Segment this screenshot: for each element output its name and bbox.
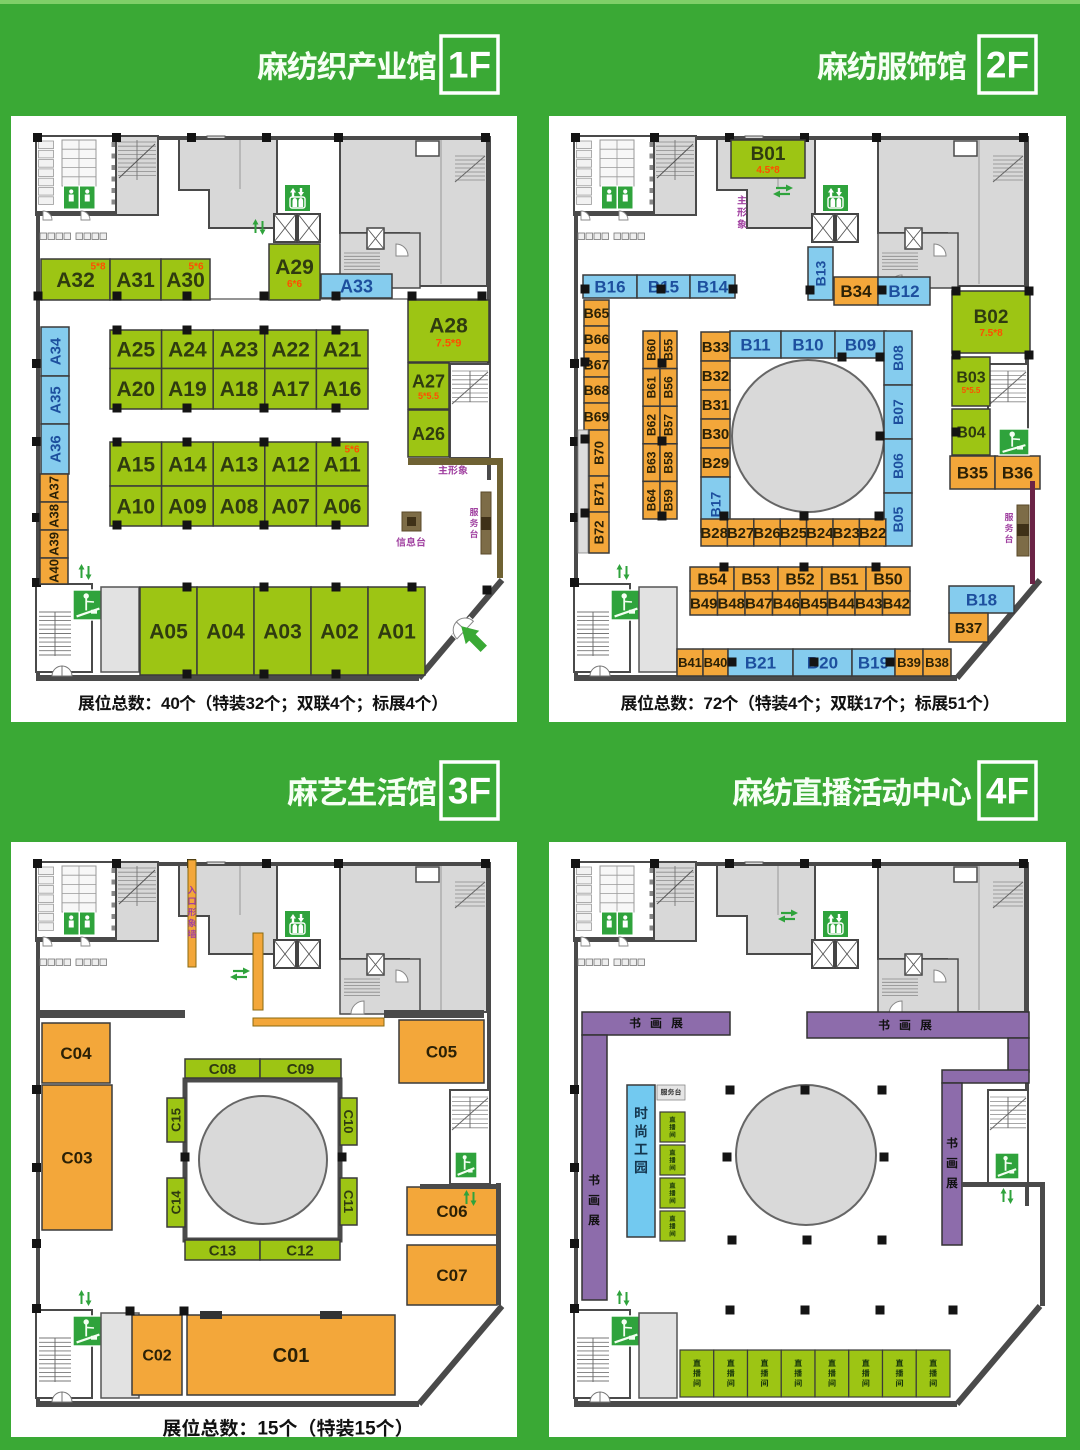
- svg-text:B01: B01: [751, 144, 786, 165]
- svg-text:B25: B25: [780, 525, 808, 542]
- svg-text:C10: C10: [341, 1110, 356, 1134]
- svg-text:B54: B54: [697, 572, 726, 589]
- svg-text:B52: B52: [785, 572, 814, 589]
- svg-text:B65: B65: [584, 305, 610, 321]
- svg-text:A17: A17: [271, 378, 310, 401]
- svg-text:B14: B14: [697, 277, 729, 296]
- svg-text:15: 15: [355, 1419, 377, 1437]
- svg-text:C14: C14: [169, 1190, 184, 1215]
- svg-text:B58: B58: [662, 451, 676, 473]
- svg-text:A32: A32: [56, 269, 95, 292]
- svg-text:7.5*9: 7.5*9: [436, 337, 462, 349]
- svg-text:B12: B12: [888, 282, 919, 301]
- svg-text:B23: B23: [832, 525, 860, 542]
- svg-text:A28: A28: [429, 314, 468, 337]
- svg-text:B71: B71: [592, 482, 607, 506]
- svg-text:B03: B03: [956, 370, 985, 387]
- svg-text:B42: B42: [882, 595, 910, 612]
- svg-text:B63: B63: [645, 451, 659, 473]
- svg-text:B34: B34: [840, 282, 872, 301]
- svg-text:2F: 2F: [986, 44, 1029, 85]
- svg-text:5*6: 5*6: [344, 445, 359, 456]
- svg-text:C05: C05: [426, 1042, 457, 1061]
- svg-text:C06: C06: [436, 1202, 467, 1221]
- svg-text:72: 72: [703, 694, 722, 713]
- svg-text:C15: C15: [169, 1108, 184, 1132]
- svg-text:A14: A14: [168, 453, 207, 476]
- svg-text:A05: A05: [149, 620, 188, 643]
- svg-text:A01: A01: [377, 620, 416, 643]
- svg-text:B36: B36: [1002, 463, 1033, 482]
- svg-text:A22: A22: [271, 339, 310, 362]
- svg-text:A24: A24: [168, 339, 207, 362]
- svg-text:4.5*8: 4.5*8: [756, 165, 780, 176]
- svg-text:B11: B11: [740, 335, 770, 354]
- svg-text:A16: A16: [323, 378, 362, 401]
- svg-text:A06: A06: [323, 495, 362, 518]
- svg-text:B29: B29: [702, 455, 730, 472]
- svg-text:B21: B21: [745, 653, 776, 672]
- svg-text:A29: A29: [275, 256, 314, 279]
- svg-text:B44: B44: [827, 595, 855, 612]
- svg-text:B06: B06: [890, 453, 906, 479]
- svg-text:A09: A09: [168, 495, 207, 518]
- svg-text:B27: B27: [727, 525, 755, 542]
- svg-text:B26: B26: [753, 525, 781, 542]
- svg-text:B41: B41: [678, 655, 702, 670]
- svg-text:A25: A25: [117, 339, 156, 362]
- svg-text:B70: B70: [592, 441, 607, 465]
- svg-text:B28: B28: [700, 525, 728, 542]
- svg-text:B08: B08: [890, 345, 906, 371]
- svg-text:C08: C08: [209, 1061, 237, 1078]
- svg-text:B59: B59: [662, 489, 676, 511]
- svg-text:B55: B55: [662, 338, 676, 360]
- svg-text:B33: B33: [702, 339, 730, 356]
- svg-text:A11: A11: [324, 453, 362, 476]
- svg-text:B39: B39: [897, 655, 921, 670]
- svg-text:C01: C01: [273, 1345, 310, 1367]
- svg-text:B69: B69: [584, 408, 610, 424]
- svg-text:A15: A15: [117, 453, 156, 476]
- svg-text:B13: B13: [812, 260, 828, 286]
- svg-text:A03: A03: [263, 620, 302, 643]
- svg-text:51: 51: [948, 694, 967, 713]
- svg-text:B72: B72: [592, 521, 607, 545]
- svg-text:A23: A23: [220, 339, 259, 362]
- svg-text:B53: B53: [741, 572, 770, 589]
- svg-text:A12: A12: [271, 453, 310, 476]
- svg-text:B30: B30: [702, 426, 730, 443]
- svg-text:40: 40: [161, 694, 180, 713]
- svg-text:B07: B07: [890, 399, 906, 425]
- svg-text:B60: B60: [645, 338, 659, 360]
- svg-text:A33: A33: [340, 276, 373, 296]
- svg-text:B61: B61: [645, 376, 659, 398]
- svg-text:B40: B40: [704, 655, 728, 670]
- svg-text:B49: B49: [690, 595, 718, 612]
- svg-text:B24: B24: [806, 525, 834, 542]
- svg-text:B68: B68: [584, 382, 610, 398]
- svg-text:A36: A36: [47, 435, 64, 463]
- svg-text:7.5*8: 7.5*8: [979, 328, 1003, 339]
- svg-text:B64: B64: [645, 489, 659, 511]
- svg-text:5*8: 5*8: [90, 262, 105, 273]
- svg-text:A02: A02: [320, 620, 359, 643]
- svg-text:A18: A18: [220, 378, 259, 401]
- svg-text:A19: A19: [168, 378, 207, 401]
- svg-text:B47: B47: [745, 595, 773, 612]
- svg-text:C09: C09: [287, 1061, 315, 1078]
- svg-text:B51: B51: [829, 572, 858, 589]
- svg-text:B35: B35: [957, 463, 988, 482]
- svg-text:B04: B04: [956, 425, 985, 442]
- svg-text:C07: C07: [436, 1266, 467, 1285]
- svg-text:B62: B62: [645, 414, 659, 436]
- svg-text:B38: B38: [925, 655, 949, 670]
- svg-text:B46: B46: [772, 595, 800, 612]
- svg-text:A20: A20: [117, 378, 156, 401]
- svg-text:B32: B32: [702, 368, 730, 385]
- svg-text:B48: B48: [717, 595, 745, 612]
- svg-text:C11: C11: [341, 1190, 356, 1213]
- svg-text:A04: A04: [206, 620, 245, 643]
- svg-text:A40: A40: [47, 559, 62, 583]
- svg-text:B19: B19: [858, 653, 889, 672]
- svg-text:17: 17: [863, 694, 882, 713]
- svg-text:A26: A26: [412, 424, 445, 444]
- svg-text:4F: 4F: [986, 770, 1029, 811]
- svg-text:B43: B43: [855, 595, 883, 612]
- svg-text:32: 32: [245, 694, 264, 713]
- svg-text:A27: A27: [412, 371, 445, 391]
- svg-text:5*5.5: 5*5.5: [418, 391, 439, 401]
- svg-text:B66: B66: [584, 331, 610, 347]
- svg-text:A13: A13: [220, 453, 259, 476]
- svg-text:1F: 1F: [448, 44, 491, 85]
- svg-text:A37: A37: [47, 476, 62, 500]
- svg-text:A08: A08: [220, 495, 259, 518]
- svg-text:C13: C13: [209, 1242, 237, 1259]
- svg-text:B02: B02: [974, 307, 1009, 328]
- svg-text:5*5.5: 5*5.5: [962, 386, 981, 395]
- svg-text:B16: B16: [594, 277, 625, 296]
- svg-text:B10: B10: [792, 335, 823, 354]
- svg-text:A39: A39: [47, 532, 62, 556]
- svg-text:A31: A31: [116, 269, 155, 292]
- svg-text:B09: B09: [845, 335, 876, 354]
- svg-text:B22: B22: [859, 525, 887, 542]
- svg-text:A10: A10: [117, 495, 156, 518]
- svg-text:4: 4: [788, 694, 798, 713]
- svg-text:C02: C02: [142, 1348, 171, 1365]
- svg-text:C04: C04: [60, 1044, 92, 1063]
- svg-text:4: 4: [330, 694, 340, 713]
- svg-text:B45: B45: [800, 595, 828, 612]
- svg-text:4: 4: [405, 694, 415, 713]
- svg-text:15: 15: [257, 1419, 279, 1437]
- svg-text:B18: B18: [966, 590, 997, 609]
- svg-text:A21: A21: [323, 339, 362, 362]
- svg-text:B56: B56: [662, 376, 676, 398]
- svg-text:A38: A38: [47, 504, 62, 528]
- svg-text:5*6: 5*6: [188, 262, 203, 273]
- svg-text:A35: A35: [47, 386, 64, 414]
- svg-text:A34: A34: [47, 337, 64, 365]
- svg-text:B37: B37: [955, 620, 983, 637]
- svg-text:B50: B50: [873, 572, 902, 589]
- svg-text:B05: B05: [890, 506, 906, 532]
- svg-text:3F: 3F: [448, 770, 491, 811]
- svg-text:B31: B31: [702, 397, 730, 414]
- svg-text:6*6: 6*6: [287, 279, 302, 290]
- svg-text:C12: C12: [286, 1242, 314, 1259]
- svg-text:B57: B57: [662, 414, 676, 436]
- svg-text:C03: C03: [61, 1148, 92, 1167]
- svg-text:A07: A07: [271, 495, 310, 518]
